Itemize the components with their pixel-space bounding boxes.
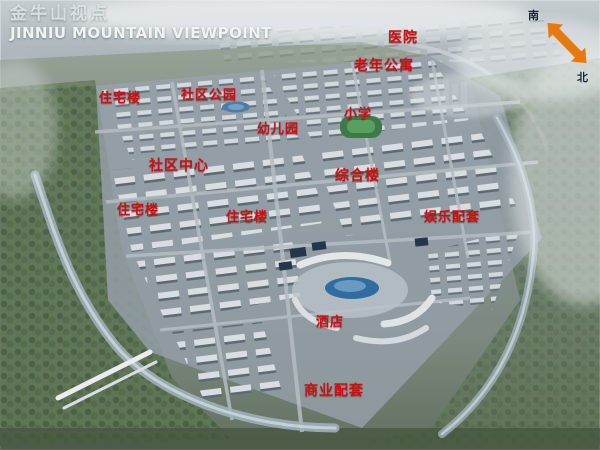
map-label-kindergarten: 幼儿园 <box>257 123 299 136</box>
map-label-community-center: 社区中心 <box>149 159 209 173</box>
map-label-senior-apartments: 老年公寓 <box>354 59 414 73</box>
aerial-site-plan-art <box>0 0 600 450</box>
map-label-community-park: 社区公园 <box>181 89 237 102</box>
map-label-hotel: 酒店 <box>316 316 344 329</box>
compass-south-label: 南 <box>528 10 539 21</box>
map-label-residential-1: 住宅楼 <box>99 92 141 105</box>
map-label-entertainment-facilities: 娱乐配套 <box>424 211 480 224</box>
viewpoint-title-english: JINNIU MOUNTAIN VIEWPOINT <box>10 25 272 42</box>
map-label-residential-3: 住宅楼 <box>226 211 268 224</box>
map-label-complex-building: 综合楼 <box>335 169 380 183</box>
compass-north-label: 北 <box>577 72 588 83</box>
map-label-residential-2: 住宅楼 <box>117 204 159 217</box>
map-label-primary-school: 小学 <box>344 108 372 121</box>
viewpoint-title: 金牛山视点 JINNIU MOUNTAIN VIEWPOINT <box>10 5 272 42</box>
map-label-hospital: 医院 <box>388 31 418 45</box>
viewpoint-title-chinese: 金牛山视点 <box>10 5 272 25</box>
aerial-rendering-image: 金牛山视点 JINNIU MOUNTAIN VIEWPOINT 南 北 医院 老… <box>0 0 600 450</box>
compass-arrow-icon <box>532 8 600 78</box>
map-label-commercial-facilities: 商业配套 <box>304 384 364 398</box>
